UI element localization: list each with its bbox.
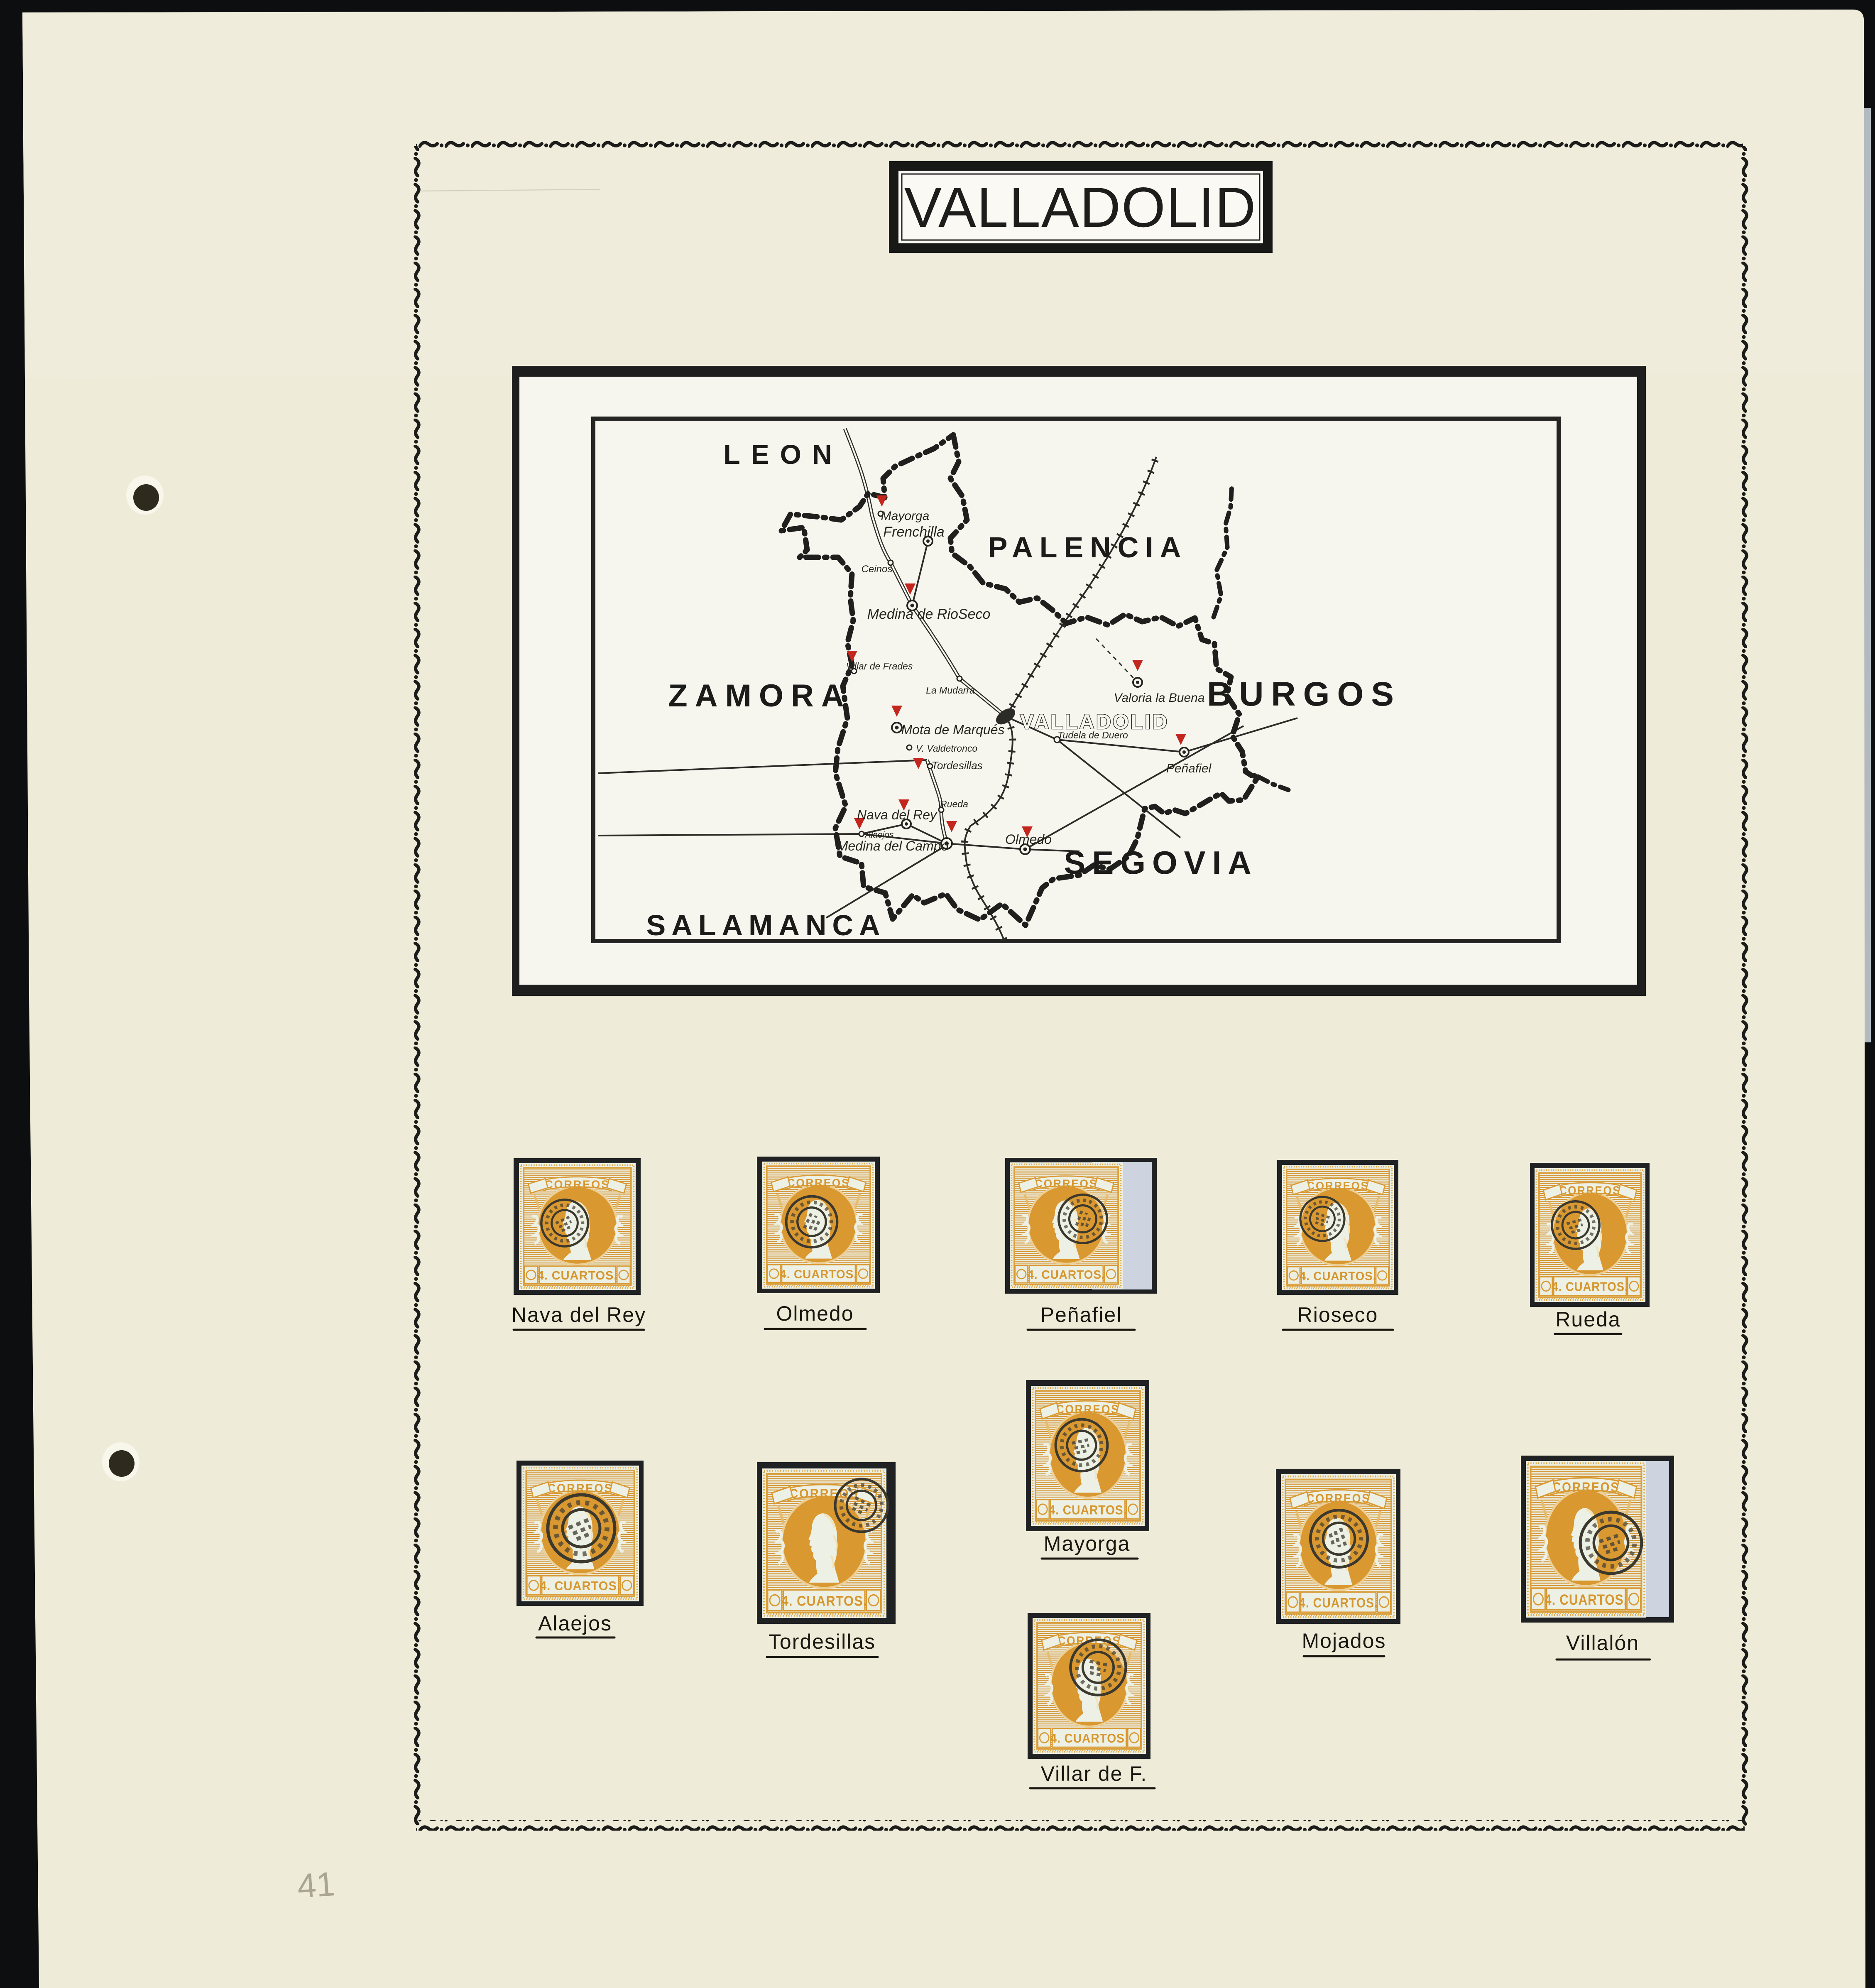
svg-text:BURGOS: BURGOS xyxy=(1207,675,1401,713)
svg-text:Mayorga: Mayorga xyxy=(1044,1532,1131,1555)
svg-text:La Mudarra: La Mudarra xyxy=(926,685,975,696)
svg-text:Olmedo: Olmedo xyxy=(1005,832,1052,847)
svg-text:Alaejos: Alaejos xyxy=(538,1612,612,1635)
svg-text:VALLADOLID: VALLADOLID xyxy=(904,176,1257,239)
svg-text:Frenchilla: Frenchilla xyxy=(883,524,944,540)
svg-text:SALAMANCA: SALAMANCA xyxy=(646,909,886,941)
svg-text:41: 41 xyxy=(296,1865,336,1905)
svg-text:Peñafiel: Peñafiel xyxy=(1166,762,1212,775)
svg-text:Medina del Campo: Medina del Campo xyxy=(837,838,949,853)
svg-text:Medina de RioSeco: Medina de RioSeco xyxy=(867,606,991,622)
svg-text:Mayorga: Mayorga xyxy=(881,509,930,523)
svg-text:Valoria la Buena: Valoria la Buena xyxy=(1114,691,1204,705)
svg-text:Mota de Marqués: Mota de Marqués xyxy=(901,722,1004,737)
svg-text:Peñafiel: Peñafiel xyxy=(1040,1303,1122,1326)
svg-text:Tudela de Duero: Tudela de Duero xyxy=(1057,730,1128,740)
svg-text:Nava del Rey: Nava del Rey xyxy=(512,1303,646,1326)
svg-text:Villar de F.: Villar de F. xyxy=(1041,1762,1148,1785)
svg-text:Ceinos: Ceinos xyxy=(862,564,893,575)
svg-text:Rueda: Rueda xyxy=(1555,1308,1620,1331)
svg-text:Tordesillas: Tordesillas xyxy=(931,759,982,772)
svg-text:Rioseco: Rioseco xyxy=(1297,1303,1378,1326)
svg-text:Villalón: Villalón xyxy=(1566,1631,1639,1655)
svg-text:SEGOVIA: SEGOVIA xyxy=(1064,844,1258,881)
svg-text:PALENCIA: PALENCIA xyxy=(988,531,1188,564)
svg-text:LEON: LEON xyxy=(723,439,842,470)
svg-text:V. Valdetronco: V. Valdetronco xyxy=(916,743,978,754)
svg-text:Rueda: Rueda xyxy=(940,799,968,809)
svg-text:Nava del Rey: Nava del Rey xyxy=(857,807,937,822)
svg-text:Villar de Frades: Villar de Frades xyxy=(846,661,913,672)
svg-text:Tordesillas: Tordesillas xyxy=(769,1630,876,1653)
svg-text:Mojados: Mojados xyxy=(1302,1629,1386,1652)
svg-text:ZAMORA: ZAMORA xyxy=(668,678,852,713)
svg-text:Olmedo: Olmedo xyxy=(776,1302,854,1325)
